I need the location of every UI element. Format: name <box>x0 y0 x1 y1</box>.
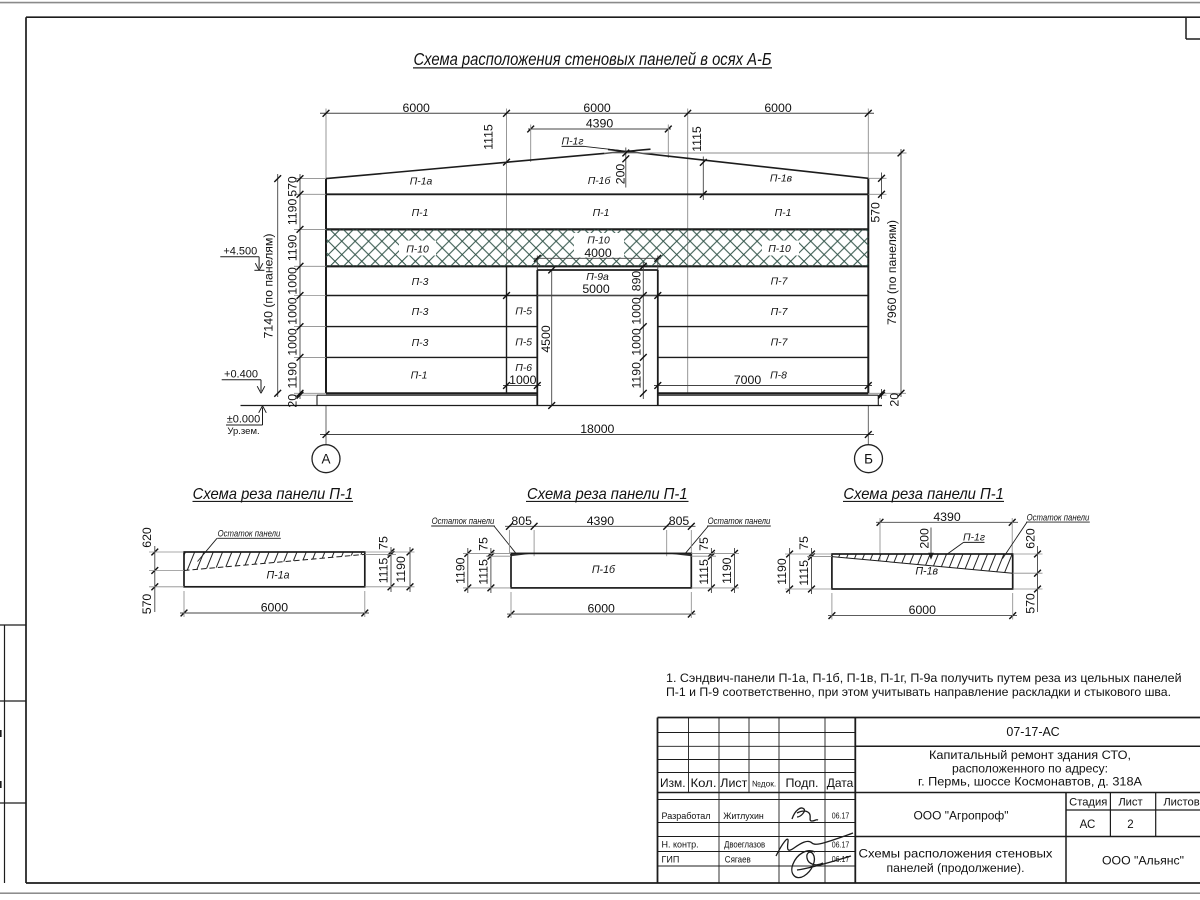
svg-text:Ур.зем.: Ур.зем. <box>227 426 259 437</box>
svg-text:1115: 1115 <box>697 559 711 585</box>
svg-text:Житлухин: Житлухин <box>723 811 764 821</box>
svg-text:Изм.: Изм. <box>660 776 686 790</box>
svg-text:1000: 1000 <box>286 297 300 325</box>
svg-text:ООО "Агропроф": ООО "Агропроф" <box>914 808 1009 822</box>
svg-text:805: 805 <box>511 514 532 528</box>
svg-text:5000: 5000 <box>582 282 610 296</box>
svg-text:1000: 1000 <box>629 297 643 325</box>
svg-text:АС: АС <box>1080 819 1096 831</box>
svg-text:П-1в: П-1в <box>770 174 793 185</box>
svg-text:6000: 6000 <box>583 101 611 115</box>
svg-text:1000: 1000 <box>629 328 643 356</box>
svg-text:П-1б: П-1б <box>592 564 616 576</box>
svg-text:6000: 6000 <box>764 101 792 115</box>
svg-text:570: 570 <box>869 202 883 223</box>
svg-text:Сягаев: Сягаев <box>725 854 751 864</box>
svg-text:П-10: П-10 <box>768 244 791 255</box>
svg-text:75: 75 <box>797 536 811 550</box>
svg-text:6000: 6000 <box>261 601 289 615</box>
svg-text:+0.400: +0.400 <box>224 368 258 380</box>
svg-text:П-1а: П-1а <box>410 177 433 188</box>
svg-text:расположенного по адресу:: расположенного по адресу: <box>952 761 1108 775</box>
svg-text:Остаток панели: Остаток панели <box>708 516 771 526</box>
svg-text:П-5: П-5 <box>515 338 532 349</box>
svg-text:200: 200 <box>613 164 627 185</box>
svg-text:Двоеглазов: Двоеглазов <box>724 840 765 850</box>
svg-text:П-8: П-8 <box>770 370 787 381</box>
svg-text:18000: 18000 <box>580 422 614 436</box>
svg-text:Дата: Дата <box>827 776 854 790</box>
svg-text:1190: 1190 <box>286 235 300 262</box>
svg-text:07-17-АС: 07-17-АС <box>1006 725 1059 739</box>
svg-text:1115: 1115 <box>797 560 811 586</box>
svg-text:06.17: 06.17 <box>832 841 850 850</box>
svg-text:7000: 7000 <box>734 373 762 387</box>
svg-text:1000: 1000 <box>509 373 537 387</box>
svg-text:П-1 и П-9 соответственно, при: П-1 и П-9 соответственно, при этом учиты… <box>666 685 1171 699</box>
svg-text:620: 620 <box>140 527 154 548</box>
svg-text:П-1: П-1 <box>593 208 610 219</box>
svg-text:75: 75 <box>697 537 711 551</box>
svg-text:П-1г: П-1г <box>963 532 985 543</box>
svg-text:Подп.: Подп. <box>786 776 819 790</box>
svg-text:4000: 4000 <box>584 246 612 260</box>
svg-text:570: 570 <box>286 176 300 197</box>
svg-text:Схема реза панели П-1: Схема реза панели П-1 <box>193 486 354 503</box>
svg-text:4390: 4390 <box>586 117 614 131</box>
svg-text:890: 890 <box>629 271 643 292</box>
svg-text:±0.000: ±0.000 <box>227 414 261 426</box>
svg-text:Разработал: Разработал <box>662 811 711 821</box>
svg-text:Схема расположения стеновых па: Схема расположения стеновых панелей в ос… <box>414 49 772 69</box>
svg-text:4390: 4390 <box>933 510 961 524</box>
svg-text:Схема реза панели П-1: Схема реза панели П-1 <box>527 486 688 503</box>
svg-text:П-1в: П-1в <box>915 565 938 577</box>
svg-text:П-10: П-10 <box>406 245 429 256</box>
svg-text:6000: 6000 <box>403 101 431 115</box>
svg-text:ООО "Альянс": ООО "Альянс" <box>1102 854 1184 868</box>
svg-text:№док.: №док. <box>752 779 776 789</box>
svg-text:570: 570 <box>140 594 154 615</box>
svg-text:1. Сэндвич-панели П-1а, П-1б,: 1. Сэндвич-панели П-1а, П-1б, П-1в, П-1г… <box>666 671 1182 685</box>
svg-text:П-1: П-1 <box>412 208 429 219</box>
svg-text:1115: 1115 <box>690 126 704 152</box>
svg-text:Лист: Лист <box>1118 797 1142 809</box>
svg-text:П-1г: П-1г <box>562 136 584 147</box>
svg-text:П-7: П-7 <box>771 277 789 288</box>
svg-text:П-7: П-7 <box>771 338 789 349</box>
svg-text:1115: 1115 <box>377 558 391 584</box>
svg-text:7140 (по панелям): 7140 (по панелям) <box>262 234 276 339</box>
svg-text:6000: 6000 <box>909 603 937 617</box>
svg-text:Н. контр.: Н. контр. <box>662 840 699 850</box>
svg-text:1190: 1190 <box>394 556 408 583</box>
svg-text:570: 570 <box>1023 593 1037 614</box>
svg-text:Схема реза панели П-1: Схема реза панели П-1 <box>843 486 1004 503</box>
svg-text:75: 75 <box>377 536 391 550</box>
svg-text:г. Пермь, шоссе Космонавтов, д: г. Пермь, шоссе Космонавтов, д. 318А <box>918 775 1143 789</box>
svg-text:1190: 1190 <box>720 557 734 584</box>
svg-text:1190: 1190 <box>454 557 468 584</box>
svg-text:805: 805 <box>669 514 690 528</box>
svg-text:620: 620 <box>1023 528 1037 549</box>
svg-text:П-1: П-1 <box>775 208 792 219</box>
svg-text:П-1: П-1 <box>411 371 428 382</box>
svg-text:П-3: П-3 <box>412 277 429 288</box>
svg-text:панелей (продолжение).: панелей (продолжение). <box>887 861 1025 875</box>
svg-text:Б: Б <box>864 452 873 467</box>
svg-text:Листов: Листов <box>1163 797 1199 809</box>
svg-text:Стадия: Стадия <box>1069 797 1107 809</box>
svg-text:1190: 1190 <box>286 199 300 226</box>
svg-text:Схемы расположения стеновых: Схемы расположения стеновых <box>859 846 1053 860</box>
svg-text:Остаток панели: Остаток панели <box>432 516 495 526</box>
svg-text:П-6: П-6 <box>515 363 532 374</box>
svg-text:П-10: П-10 <box>587 235 610 246</box>
svg-text:П-5: П-5 <box>515 307 532 318</box>
svg-text:7960 (по панелям): 7960 (по панелям) <box>885 220 899 325</box>
svg-text:1115: 1115 <box>481 124 495 150</box>
svg-text:4500: 4500 <box>539 325 553 353</box>
svg-text:Остаток панели: Остаток панели <box>218 529 281 539</box>
svg-text:П-9а: П-9а <box>586 272 609 283</box>
svg-text:Лист: Лист <box>720 776 748 790</box>
svg-text:+4.500: +4.500 <box>223 245 257 257</box>
svg-text:П-3: П-3 <box>412 307 429 318</box>
svg-text:Кол.: Кол. <box>691 776 717 790</box>
svg-text:Остаток панели: Остаток панели <box>1027 512 1090 522</box>
svg-text:1115: 1115 <box>477 559 491 585</box>
svg-text:200: 200 <box>918 528 932 549</box>
svg-text:1000: 1000 <box>286 328 300 356</box>
svg-text:06.17: 06.17 <box>832 812 850 821</box>
svg-text:Капитальный ремонт здания СТО,: Капитальный ремонт здания СТО, <box>929 748 1131 762</box>
svg-text:1000: 1000 <box>286 267 300 295</box>
svg-text:1190: 1190 <box>629 362 643 389</box>
svg-text:А: А <box>321 452 330 467</box>
svg-text:20: 20 <box>286 394 300 408</box>
svg-text:75: 75 <box>477 537 491 551</box>
svg-text:1190: 1190 <box>775 558 789 585</box>
svg-text:П-3: П-3 <box>412 338 429 349</box>
svg-text:2: 2 <box>1127 819 1133 831</box>
svg-text:П-7: П-7 <box>771 307 789 318</box>
svg-text:П-1а: П-1а <box>267 569 290 581</box>
svg-text:1190: 1190 <box>286 362 300 389</box>
svg-text:6000: 6000 <box>588 602 616 616</box>
svg-text:П-1б: П-1б <box>588 175 612 187</box>
svg-text:ГИП: ГИП <box>662 854 680 864</box>
svg-text:4390: 4390 <box>587 514 615 528</box>
